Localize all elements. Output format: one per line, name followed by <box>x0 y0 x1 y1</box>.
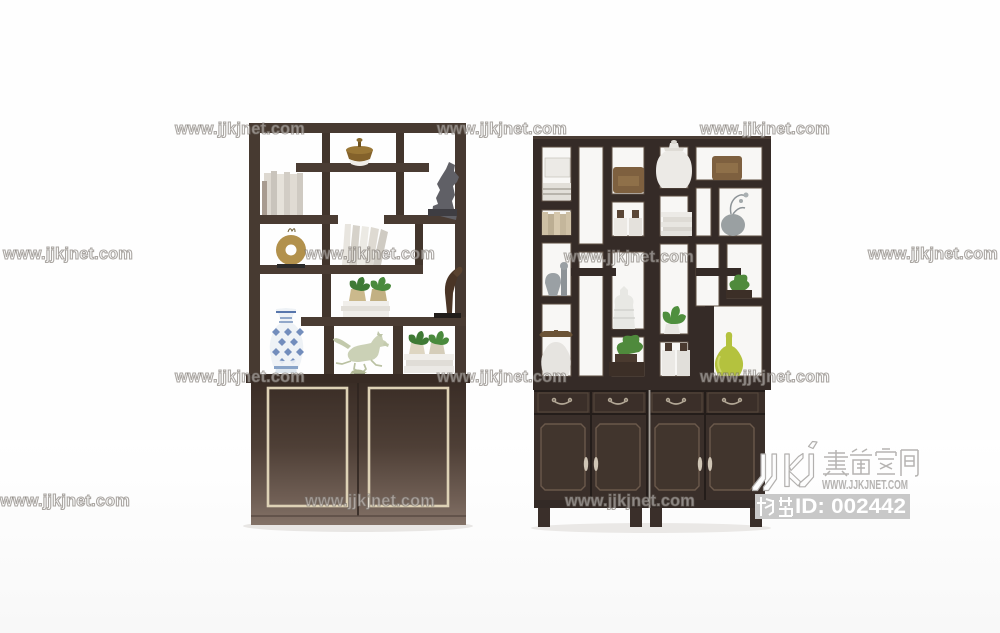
svg-text:WWW.JJKJNET.COM: WWW.JJKJNET.COM <box>822 478 908 492</box>
svg-text:ID: 002442: ID: 002442 <box>795 495 906 518</box>
